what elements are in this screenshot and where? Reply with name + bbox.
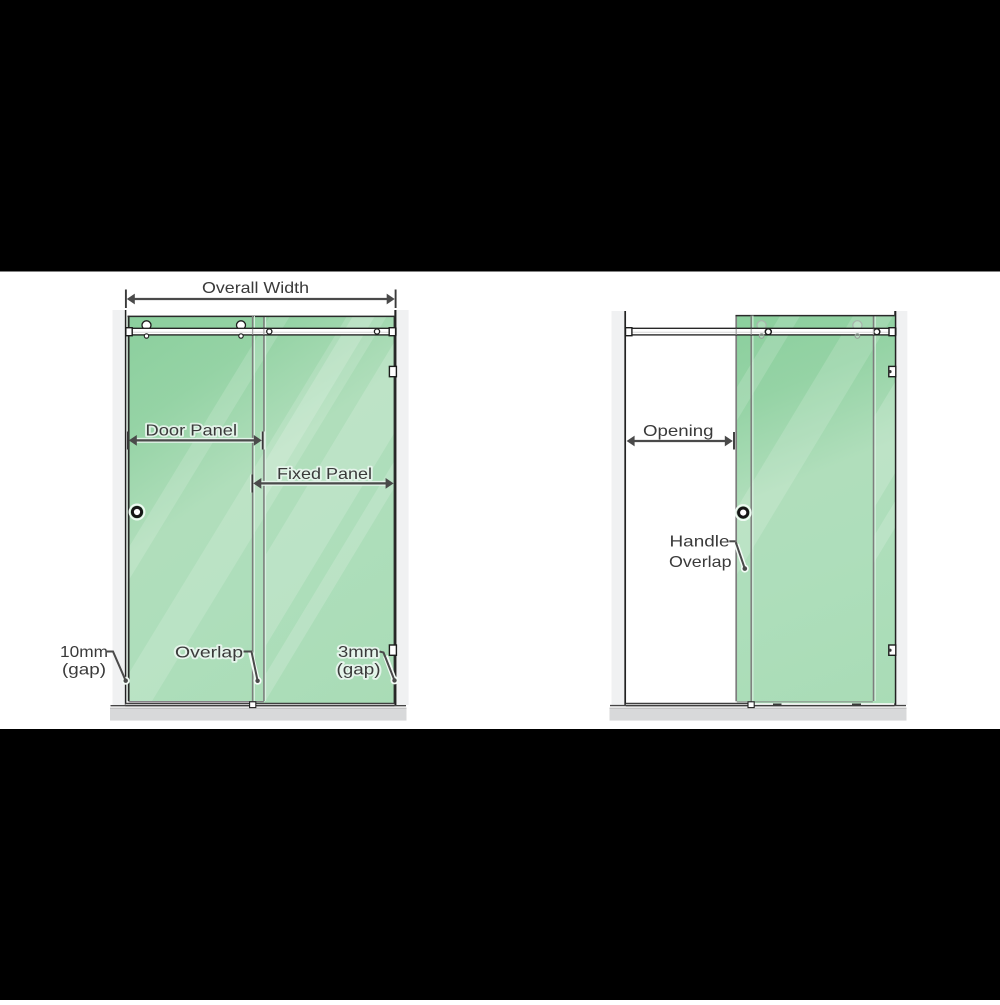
svg-text:Handle: Handle [670,534,730,551]
svg-text:Door Panel: Door Panel [146,422,238,439]
svg-text:Overlap: Overlap [175,644,243,661]
svg-text:10mm: 10mm [60,644,108,661]
svg-text:Overlap: Overlap [669,554,732,571]
svg-text:(gap): (gap) [62,661,106,678]
svg-text:Overall Width: Overall Width [202,280,309,297]
svg-text:3mm: 3mm [338,644,379,661]
svg-text:Opening: Opening [643,423,714,440]
svg-text:Fixed Panel: Fixed Panel [277,466,372,483]
svg-text:(gap): (gap) [337,661,381,678]
